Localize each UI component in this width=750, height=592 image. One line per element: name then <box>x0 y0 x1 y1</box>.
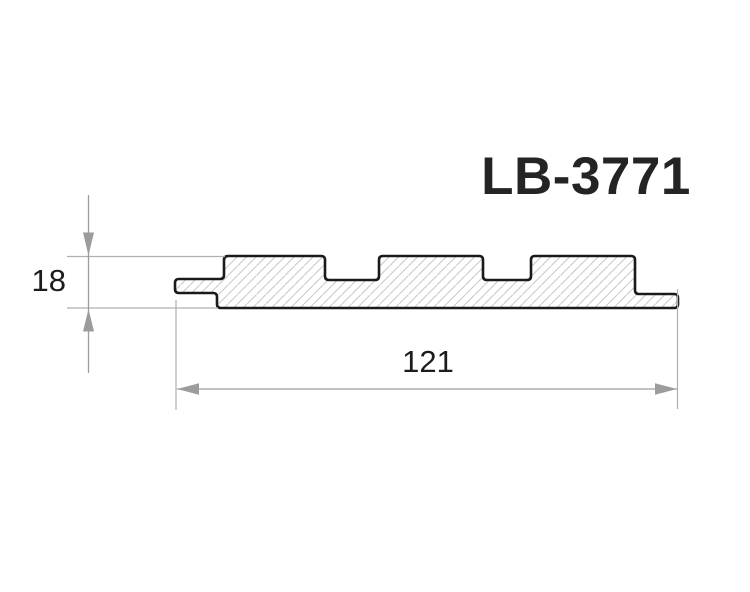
arrow-right-icon <box>655 383 677 395</box>
width-dimension-label: 121 <box>402 344 454 379</box>
arrow-up-icon <box>83 309 94 332</box>
arrow-down-icon <box>83 233 94 256</box>
profile-cross-section <box>175 256 678 308</box>
profile-drawing: LB-3771 18 121 <box>0 0 750 592</box>
drawing-svg: LB-3771 18 121 <box>0 0 750 592</box>
height-dimension-label: 18 <box>32 263 66 298</box>
arrow-left-icon <box>177 383 199 395</box>
profile-code-title: LB-3771 <box>481 147 691 206</box>
